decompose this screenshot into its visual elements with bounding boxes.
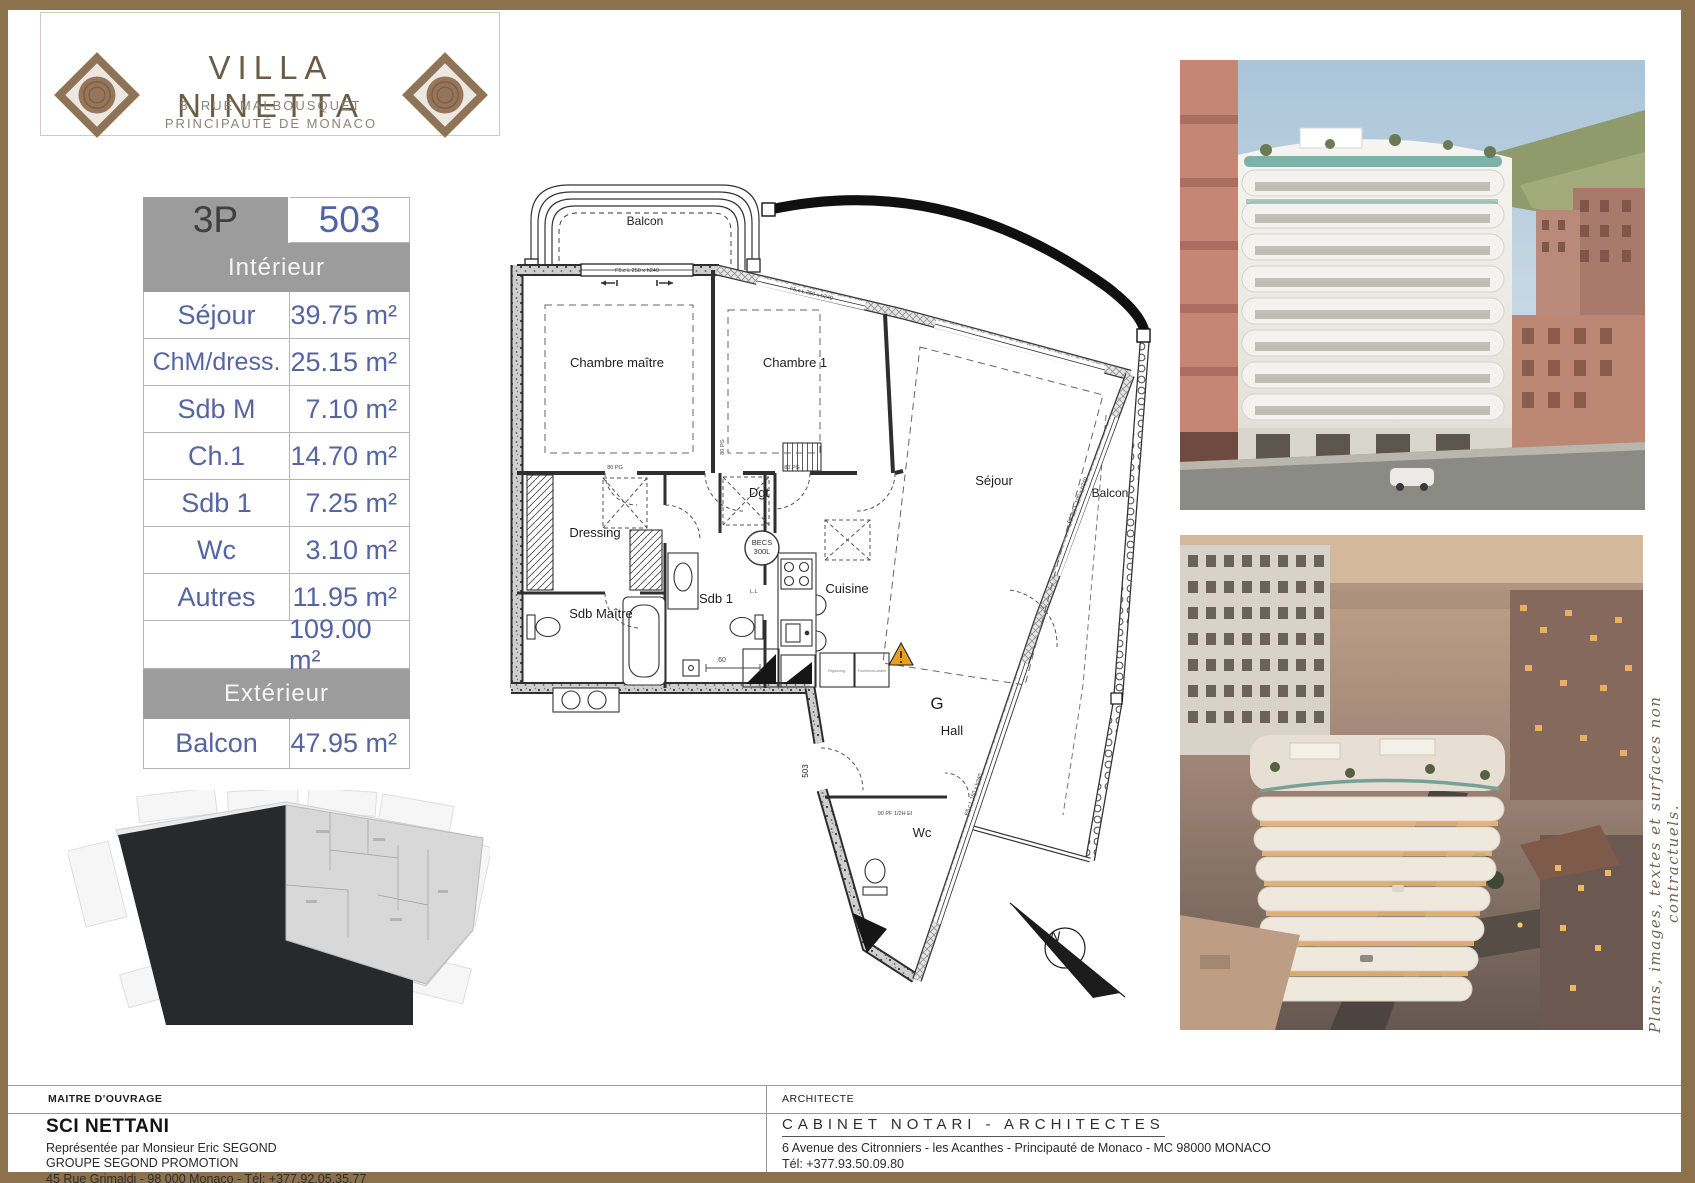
- architect-company: CABINET NOTARI - ARCHITECTES: [782, 1116, 1165, 1137]
- header: VILLA NINETTA 3, RUE MALBOUSQUET PRINCIP…: [40, 12, 500, 136]
- architect-line2: Tél: +377.93.50.09.80: [782, 1157, 1271, 1173]
- table-row: Ch.1 14.70 m²: [143, 433, 410, 480]
- table-row: ChM/dress. 25.15 m²: [143, 339, 410, 386]
- owner-line2: GROUPE SEGOND PROMOTION: [46, 1156, 366, 1171]
- footer-owner-block: SCI NETTANI Représentée par Monsieur Eri…: [46, 1116, 366, 1183]
- brochure-page: VILLA NINETTA 3, RUE MALBOUSQUET PRINCIP…: [0, 0, 1695, 1183]
- villa-logo-icon: [53, 51, 141, 139]
- room-label-chambre-maitre: Chambre maître: [570, 355, 664, 370]
- frame-right: [1681, 0, 1695, 1183]
- area-table: 3P 503 Intérieur Séjour 39.75 m² ChM/dre…: [143, 197, 410, 769]
- door-arcs: [605, 473, 1057, 797]
- unit-number: 503: [290, 197, 410, 243]
- svg-text:300L: 300L: [754, 547, 771, 556]
- table-row-unit: 3P 503: [143, 197, 410, 243]
- svg-text:Frigo/cong.: Frigo/cong.: [828, 669, 846, 673]
- water-heater: BECS 300L: [745, 531, 779, 565]
- unit-type: 3P: [143, 197, 290, 243]
- footer-architect-block: CABINET NOTARI - ARCHITECTES 6 Avenue de…: [782, 1116, 1271, 1172]
- owner-line3: 45 Rue Grimaldi - 98 000 Monaco - Tél: +…: [46, 1172, 366, 1183]
- table-row-total: 109.00 m²: [143, 621, 410, 669]
- table-row: Sdb M 7.10 m²: [143, 386, 410, 433]
- dimension-line: [706, 664, 760, 672]
- building-photo-day: [1180, 60, 1645, 510]
- footer-role-owner: MAITRE D'OUVRAGE: [48, 1093, 162, 1105]
- exterior-header: Extérieur: [143, 669, 410, 719]
- footer-divider-mid: [8, 1113, 1681, 1114]
- footer-divider-top: [8, 1085, 1681, 1086]
- svg-text:N: N: [1050, 928, 1061, 944]
- table-row: Séjour 39.75 m²: [143, 292, 410, 339]
- interior-total: 109.00 m²: [289, 621, 409, 668]
- north-arrow-icon: N: [1010, 903, 1125, 998]
- svg-text:.60: .60: [716, 657, 726, 664]
- disclaimer-text: Plans, images, textes et surfaces non co…: [1646, 678, 1674, 1050]
- room-label-balcon-top: Balcon: [627, 214, 664, 228]
- svg-text:80 PG: 80 PG: [784, 465, 800, 471]
- owner-company: SCI NETTANI: [46, 1116, 366, 1138]
- table-row: Wc 3.10 m²: [143, 527, 410, 574]
- floor-plan: Balcon Balcon: [465, 165, 1175, 1005]
- frame-top: [0, 0, 1695, 10]
- villa-logo-icon: [401, 51, 489, 139]
- architect-line1: 6 Avenue des Citronniers - les Acanthes …: [782, 1141, 1271, 1157]
- room-label-cuisine: Cuisine: [825, 581, 868, 596]
- svg-text:BECS: BECS: [752, 538, 772, 547]
- key-plan: [68, 790, 490, 1030]
- table-row: Sdb 1 7.25 m²: [143, 480, 410, 527]
- svg-text:L.L: L.L: [750, 589, 758, 595]
- room-label-g: G: [930, 694, 943, 713]
- room-label-sdb-maitre: Sdb Maître: [569, 606, 633, 621]
- room-label-balcon-right: Balcon: [1092, 486, 1129, 500]
- room-label-sejour: Séjour: [975, 473, 1013, 488]
- outer-walls: [511, 264, 1130, 980]
- room-label-dgt: Dgt: [749, 485, 770, 500]
- frame-left: [0, 0, 8, 1183]
- footer-role-architect: ARCHITECTE: [782, 1093, 854, 1105]
- svg-text:90 PF 1/2H EI: 90 PF 1/2H EI: [878, 811, 913, 817]
- unit-door-number: 503: [801, 764, 810, 778]
- address-line2: PRINCIPAUTÉ DE MONACO: [136, 115, 406, 133]
- svg-text:Four/micro-ondes: Four/micro-ondes: [858, 669, 886, 673]
- balcony-top: [525, 185, 760, 272]
- room-label-hall: Hall: [941, 723, 964, 738]
- room-label-dressing: Dressing: [569, 525, 620, 540]
- table-row: Balcon 47.95 m²: [143, 719, 410, 769]
- footer-divider-vertical: [766, 1085, 767, 1172]
- address-line1: 3, RUE MALBOUSQUET: [136, 97, 406, 115]
- room-label-chambre-1: Chambre 1: [763, 355, 827, 370]
- room-label-sdb1: Sdb 1: [699, 591, 733, 606]
- interior-header: Intérieur: [143, 243, 410, 292]
- room-label-wc: Wc: [913, 825, 932, 840]
- owner-line1: Représentée par Monsieur Eric SEGOND: [46, 1141, 366, 1156]
- svg-text:80 PG: 80 PG: [720, 439, 726, 455]
- project-address: 3, RUE MALBOUSQUET PRINCIPAUTÉ DE MONACO: [136, 97, 406, 132]
- svg-text:80 PG: 80 PG: [607, 465, 623, 471]
- svg-text:F5.c L 250 x h240: F5.c L 250 x h240: [615, 268, 659, 274]
- building-photo-dusk: [1180, 535, 1643, 1030]
